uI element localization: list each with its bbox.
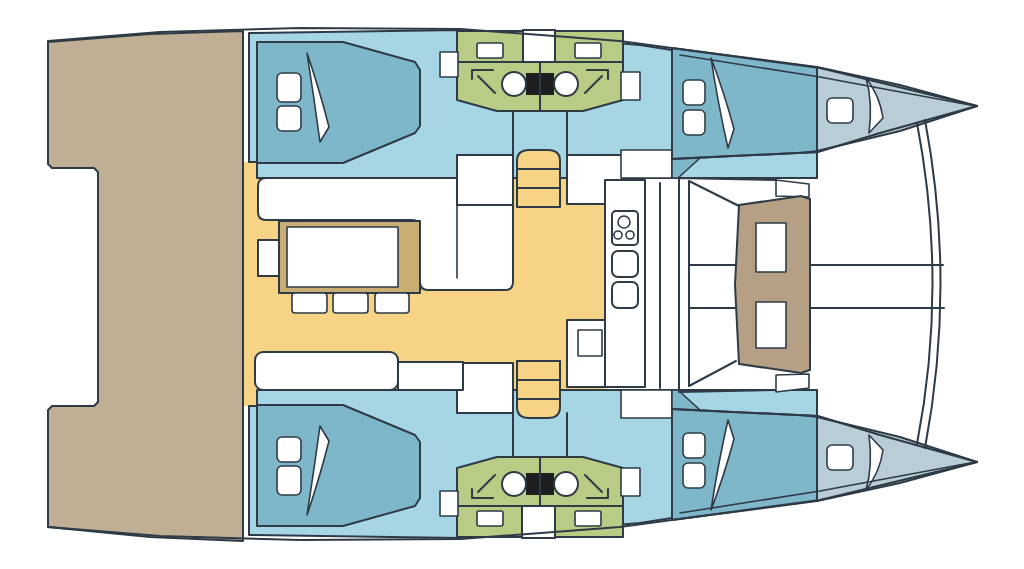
port-stairs xyxy=(517,150,560,207)
stove-burner-icon xyxy=(618,216,630,228)
port-bath-sink-right xyxy=(575,43,601,58)
toilet-tank-icon xyxy=(526,73,539,95)
toilet-icon xyxy=(502,72,526,96)
closet xyxy=(440,52,458,77)
toilet-tank-icon xyxy=(541,473,554,495)
toilet-icon xyxy=(554,472,578,496)
aft-deck xyxy=(48,31,243,541)
starboard-bath-sink-right xyxy=(575,511,601,526)
galley-sink-icon xyxy=(612,251,638,277)
closet xyxy=(621,468,640,496)
dining-table-top xyxy=(287,227,398,287)
cockpit-seat xyxy=(776,374,809,392)
stove-burner-icon xyxy=(626,231,634,239)
nav-box xyxy=(578,330,602,356)
pillow xyxy=(277,73,301,102)
bowsprit-line xyxy=(810,265,944,308)
stool xyxy=(375,293,409,313)
cockpit-table-top xyxy=(756,302,786,348)
port-bathroom xyxy=(457,30,623,111)
starboard-stairs xyxy=(517,361,560,418)
closet xyxy=(621,72,640,100)
pillow xyxy=(683,80,705,105)
galley-sink-icon xyxy=(612,282,638,308)
toilet-icon xyxy=(502,472,526,496)
cockpit-seat xyxy=(776,180,809,197)
catamaran-floor-plan xyxy=(0,0,1024,569)
floor-plan-canvas xyxy=(0,0,1024,569)
deck-hatch xyxy=(827,98,853,123)
stove-burner-icon xyxy=(614,231,622,239)
starboard-counter-left xyxy=(457,363,513,413)
salon-side-seat xyxy=(258,240,280,276)
closet xyxy=(621,150,672,178)
starboard-bath-sink-left xyxy=(477,511,503,526)
forward-cockpit xyxy=(672,152,944,416)
pillow xyxy=(683,110,705,135)
starboard-bathroom xyxy=(457,457,623,538)
toilet-tank-icon xyxy=(541,73,554,95)
pillow xyxy=(683,463,705,488)
aft-bench xyxy=(255,352,398,390)
trampoline-beam-inner xyxy=(917,123,933,444)
pillow xyxy=(277,466,301,495)
port-counter-left xyxy=(457,155,513,205)
closet xyxy=(440,491,458,516)
cockpit-table-top xyxy=(756,223,786,272)
toilet-icon xyxy=(554,72,578,96)
aft-bench-extension xyxy=(398,362,463,390)
stool xyxy=(333,293,368,313)
deck-hatch xyxy=(827,445,853,470)
pillow xyxy=(683,433,705,458)
port-bath-sink-left xyxy=(477,43,503,58)
stool xyxy=(292,293,327,313)
pillow xyxy=(277,106,301,131)
closet xyxy=(621,390,672,418)
pillow xyxy=(277,437,301,462)
toilet-tank-icon xyxy=(526,473,539,495)
